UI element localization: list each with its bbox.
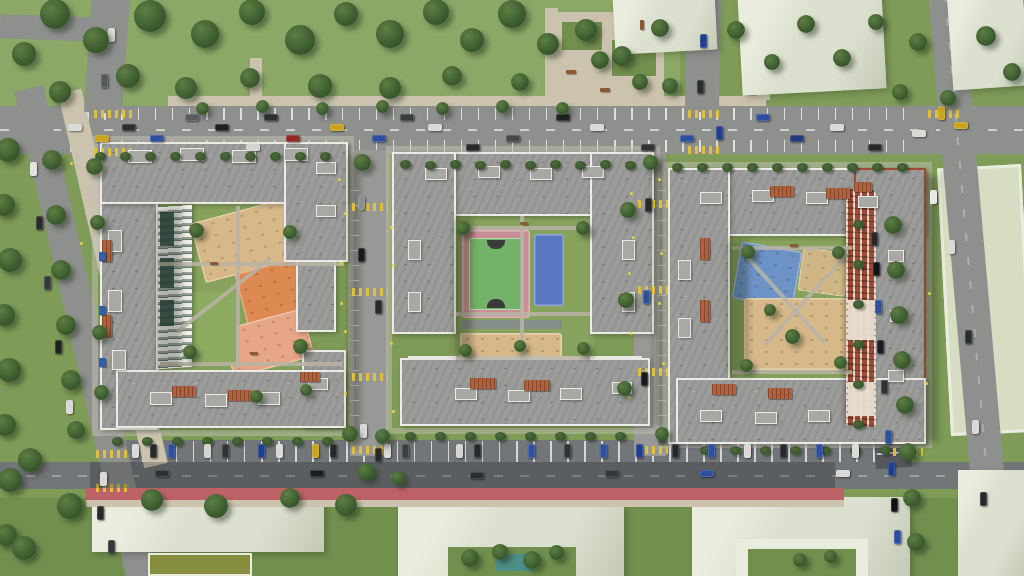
flower [344, 330, 347, 333]
car [700, 34, 707, 48]
tree [741, 245, 755, 259]
flower [344, 392, 347, 395]
sport-court-hoop-south [487, 299, 505, 308]
car [912, 130, 926, 137]
tree [342, 426, 358, 442]
roof-hatch [530, 168, 552, 180]
car [636, 444, 643, 458]
roof-hatch [408, 240, 421, 260]
car [641, 144, 655, 151]
car [108, 28, 115, 42]
car [972, 420, 979, 434]
tree [575, 19, 597, 41]
crosswalk-marking [638, 200, 668, 208]
bush [600, 160, 611, 169]
olive-court [148, 553, 252, 576]
tree [976, 26, 996, 46]
crosswalk-marking [352, 373, 388, 381]
bush [853, 340, 864, 349]
tree [334, 2, 358, 26]
car [150, 135, 164, 142]
car [830, 124, 844, 131]
bush [585, 432, 596, 441]
roof-hatch [808, 410, 830, 422]
tree [556, 102, 569, 115]
tree [498, 0, 526, 28]
car [938, 106, 945, 120]
roof-hatch [408, 292, 421, 312]
bush [292, 437, 303, 446]
tree [191, 20, 219, 48]
car [375, 448, 382, 462]
roof-hatch [678, 318, 691, 338]
roof-hatch [755, 412, 777, 424]
tree [523, 551, 541, 569]
tree [612, 46, 632, 66]
tree [12, 536, 36, 560]
aerial-render-residential-complex [0, 0, 1024, 576]
crosswalk-marking [928, 110, 962, 118]
flower [390, 342, 393, 345]
tree [890, 306, 908, 324]
tree [643, 155, 658, 170]
tree [899, 443, 917, 461]
bush [790, 446, 801, 455]
car [708, 444, 715, 458]
tree [727, 21, 745, 39]
car [700, 470, 714, 477]
tree [442, 66, 462, 86]
roof-hatch [806, 192, 828, 204]
bottom-road-shadow [90, 462, 835, 488]
car [456, 444, 463, 458]
tree [436, 102, 449, 115]
car [891, 498, 898, 512]
bush [145, 152, 156, 161]
tree [0, 194, 15, 216]
car [222, 444, 229, 458]
roof-pergola [770, 186, 794, 197]
tree [456, 221, 470, 235]
car [816, 444, 823, 458]
roof-pergola [470, 378, 496, 389]
roof-hatch [316, 205, 336, 217]
car [286, 135, 300, 142]
bush [550, 160, 561, 169]
bush [465, 432, 476, 441]
car [744, 444, 751, 458]
tree [764, 54, 780, 70]
tree [461, 549, 479, 567]
bush [450, 160, 461, 169]
tree [793, 553, 807, 567]
tree [459, 344, 472, 357]
tree [354, 154, 371, 171]
bench [640, 20, 644, 30]
bush [853, 420, 864, 429]
crosswalk-marking [688, 110, 722, 118]
flower [392, 410, 395, 413]
bush [220, 152, 231, 161]
waste-bin [99, 306, 106, 315]
tree [12, 42, 36, 66]
tree [577, 342, 590, 355]
bush [897, 163, 908, 172]
left-courtyard-shadow [156, 206, 182, 370]
car [68, 124, 82, 131]
bush [747, 163, 758, 172]
bush [575, 161, 586, 170]
crosswalk-marking [94, 110, 134, 118]
tree [0, 138, 20, 162]
car [881, 380, 888, 394]
car [873, 262, 880, 276]
tree [376, 20, 404, 48]
flower [628, 396, 631, 399]
bush [295, 152, 306, 161]
tree [832, 246, 845, 259]
tree [175, 77, 197, 99]
flower [392, 264, 395, 267]
tree [280, 488, 300, 508]
roof-hatch [316, 162, 336, 174]
tree [391, 471, 405, 485]
car [605, 470, 619, 477]
car [204, 444, 211, 458]
bench [566, 70, 576, 74]
flower [660, 252, 663, 255]
tree [740, 359, 753, 372]
car [756, 114, 770, 121]
car [645, 198, 652, 212]
car [564, 444, 571, 458]
roof-pergola [768, 388, 792, 399]
bench [210, 262, 218, 265]
car [400, 114, 414, 121]
tree [511, 73, 529, 91]
crosswalk-marking [96, 450, 130, 458]
car [836, 470, 850, 477]
car [871, 232, 878, 246]
tree [141, 489, 163, 511]
roof-pergola [172, 386, 196, 397]
tree [591, 51, 609, 69]
flower [628, 272, 631, 275]
bush [525, 432, 536, 441]
bush [525, 161, 536, 170]
car [36, 216, 43, 230]
tree [61, 370, 81, 390]
roof-hatch [622, 240, 635, 260]
car [100, 472, 107, 486]
tree [618, 292, 634, 308]
tree [1003, 63, 1021, 81]
car [276, 444, 283, 458]
courtyard-path [160, 362, 342, 366]
car [358, 196, 365, 210]
car [980, 492, 987, 506]
tree [909, 33, 927, 51]
tree [0, 414, 16, 436]
bench [520, 222, 528, 225]
roof-pergola [524, 380, 550, 391]
context-building-top-2 [737, 0, 886, 96]
tree [308, 74, 332, 98]
roof-hatch [582, 166, 604, 178]
flower [662, 362, 665, 365]
car [716, 126, 723, 140]
tree [903, 489, 921, 507]
context-building-bottom-right [958, 470, 1024, 576]
tree [537, 33, 559, 55]
bush [772, 163, 783, 172]
tree [896, 396, 914, 414]
car [95, 135, 109, 142]
tree [893, 351, 911, 369]
car [780, 444, 787, 458]
tree [90, 215, 105, 230]
car [852, 444, 859, 458]
tree [785, 329, 800, 344]
tree [40, 0, 70, 29]
flower [340, 302, 343, 305]
tree [86, 158, 103, 175]
car [506, 135, 520, 142]
tree [423, 0, 449, 25]
bush [672, 163, 683, 172]
crosswalk-marking [352, 446, 388, 454]
tree [375, 429, 390, 444]
bush [722, 163, 733, 172]
bike-lane [86, 488, 844, 500]
tree [83, 27, 109, 53]
tree [92, 325, 107, 340]
flower [928, 292, 931, 295]
tree [576, 221, 590, 235]
roof-hatch [560, 388, 582, 400]
tree [316, 102, 329, 115]
roof-pergola [700, 300, 710, 322]
blue-court [534, 234, 564, 306]
tree [94, 385, 109, 400]
car [55, 340, 62, 354]
tree [651, 19, 669, 37]
right-courtyard-shadow [728, 240, 748, 376]
tree [884, 216, 902, 234]
roof-hatch [888, 370, 904, 382]
middle-courtyard-shadow [454, 218, 472, 358]
roof-pergola [700, 238, 710, 260]
bush [853, 300, 864, 309]
tree [655, 427, 669, 441]
bush [615, 432, 626, 441]
tree [376, 100, 389, 113]
tree [834, 356, 847, 369]
flower [925, 382, 928, 385]
car [894, 530, 901, 544]
roof-hatch [455, 388, 477, 400]
car [360, 424, 367, 438]
bench [250, 352, 258, 355]
bush [270, 152, 281, 161]
car [384, 444, 391, 458]
car [877, 340, 884, 354]
bush [112, 437, 123, 446]
bush [170, 152, 181, 161]
tree [56, 315, 76, 335]
tree [549, 545, 564, 560]
tree [134, 0, 166, 32]
roof-pergola [854, 182, 872, 192]
waste-bin [99, 252, 106, 261]
flower [632, 236, 635, 239]
car [155, 470, 169, 477]
car [697, 80, 704, 94]
car [600, 444, 607, 458]
bush [320, 152, 331, 161]
car [875, 300, 882, 314]
car [101, 74, 108, 88]
tree [764, 304, 776, 316]
tree [492, 544, 508, 560]
tree [189, 223, 204, 238]
car [868, 144, 882, 151]
main-road-top-dash [0, 129, 1024, 131]
bush [853, 220, 864, 229]
bush [120, 152, 131, 161]
tree [824, 550, 837, 563]
tree [833, 49, 851, 67]
tree [887, 261, 905, 279]
roof-hatch [858, 196, 878, 208]
roof-pergola [826, 188, 850, 199]
tree [514, 340, 526, 352]
car [310, 470, 324, 477]
bush [435, 432, 446, 441]
car [132, 444, 139, 458]
tree [256, 100, 269, 113]
crosswalk-marking [688, 146, 722, 154]
tree [116, 64, 140, 88]
bottom-sidewalk [86, 500, 844, 507]
roof-pergola [712, 384, 736, 395]
bush [880, 446, 891, 455]
car [258, 444, 265, 458]
tree [300, 384, 312, 396]
flower [344, 212, 347, 215]
flower [340, 262, 343, 265]
flower [658, 178, 661, 181]
car [672, 444, 679, 458]
tree [379, 77, 401, 99]
car [590, 124, 604, 131]
roof-hatch [150, 392, 172, 405]
bush [760, 446, 771, 455]
car [556, 114, 570, 121]
flower [70, 162, 73, 165]
flower [630, 332, 633, 335]
car [168, 444, 175, 458]
roof-pergola [228, 390, 252, 401]
tree [0, 248, 22, 272]
car [885, 430, 892, 444]
bush [697, 163, 708, 172]
tree [18, 448, 42, 472]
car [470, 472, 484, 479]
left-block-roof-right-mid [296, 260, 336, 332]
roof-hatch [205, 394, 227, 407]
tree [293, 339, 308, 354]
tree [868, 14, 884, 30]
car [474, 444, 481, 458]
tree [335, 494, 357, 516]
car [643, 290, 650, 304]
tree [797, 15, 815, 33]
tree [46, 205, 66, 225]
tree [240, 68, 260, 88]
right-block-east-shadow [926, 176, 938, 442]
tree [285, 25, 315, 55]
crosswalk-marking [352, 288, 388, 296]
tree [57, 493, 83, 519]
car [30, 162, 37, 176]
tree [67, 421, 85, 439]
tree [496, 100, 509, 113]
car [330, 124, 344, 131]
flower [630, 192, 633, 195]
tree [204, 494, 228, 518]
car [97, 506, 104, 520]
tree [196, 102, 209, 115]
courtyard-path [158, 262, 344, 266]
car [402, 444, 409, 458]
tree [662, 78, 678, 94]
car [122, 124, 136, 131]
roof-hatch [678, 260, 691, 280]
bench [790, 244, 798, 247]
bush [232, 437, 243, 446]
bush [853, 260, 864, 269]
bush [822, 163, 833, 172]
tree [239, 0, 265, 25]
car [948, 240, 955, 254]
car [44, 276, 51, 290]
car [641, 372, 648, 386]
car [264, 114, 278, 121]
tree [0, 358, 21, 382]
tree [183, 345, 197, 359]
bush [555, 432, 566, 441]
car [215, 124, 229, 131]
car [375, 300, 382, 314]
roof-hatch [700, 192, 722, 204]
tree [460, 28, 484, 52]
bush [405, 432, 416, 441]
car [888, 462, 895, 476]
car [66, 400, 73, 414]
tree [250, 390, 263, 403]
car [965, 330, 972, 344]
fitness-strip [462, 320, 562, 329]
roof-pergola [300, 372, 320, 382]
roof-hatch [112, 350, 126, 370]
tree [940, 90, 956, 106]
car [680, 135, 694, 142]
bush [797, 163, 808, 172]
car [466, 144, 480, 151]
courtyard-path [456, 356, 590, 360]
flower [338, 178, 341, 181]
